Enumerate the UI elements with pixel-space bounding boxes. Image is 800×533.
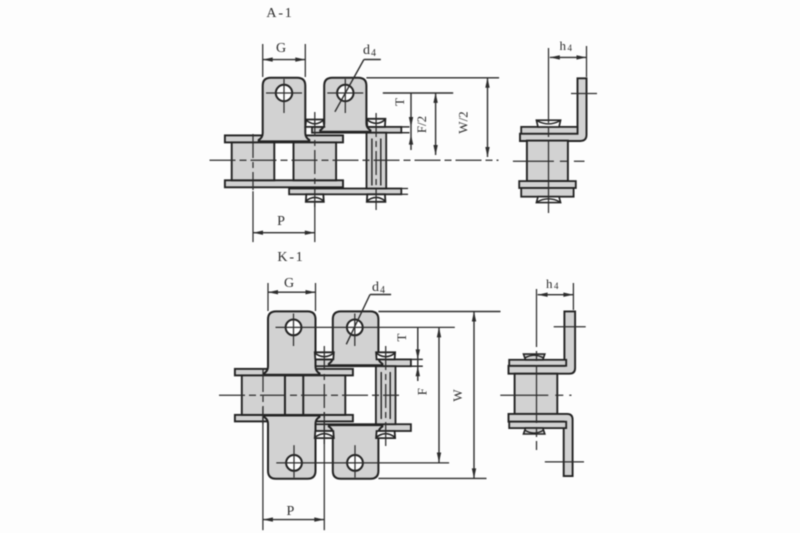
svg-text:4: 4 [371,48,376,59]
svg-text:G: G [284,276,294,291]
svg-text:K-1: K-1 [277,250,304,265]
svg-text:P: P [287,504,295,519]
svg-text:d: d [372,280,379,295]
svg-text:P: P [277,214,285,229]
svg-text:4: 4 [554,281,559,291]
svg-text:G: G [276,41,286,56]
svg-text:W: W [450,389,465,402]
svg-text:4: 4 [568,43,573,53]
svg-text:W/2: W/2 [456,111,471,133]
svg-text:A-1: A-1 [266,6,293,21]
svg-text:h: h [560,38,567,53]
svg-text:T: T [394,333,409,341]
svg-text:F/2: F/2 [414,116,429,133]
svg-text:h: h [546,276,553,291]
svg-text:F: F [415,388,430,395]
svg-text:d: d [363,43,370,58]
svg-text:T: T [392,98,407,106]
